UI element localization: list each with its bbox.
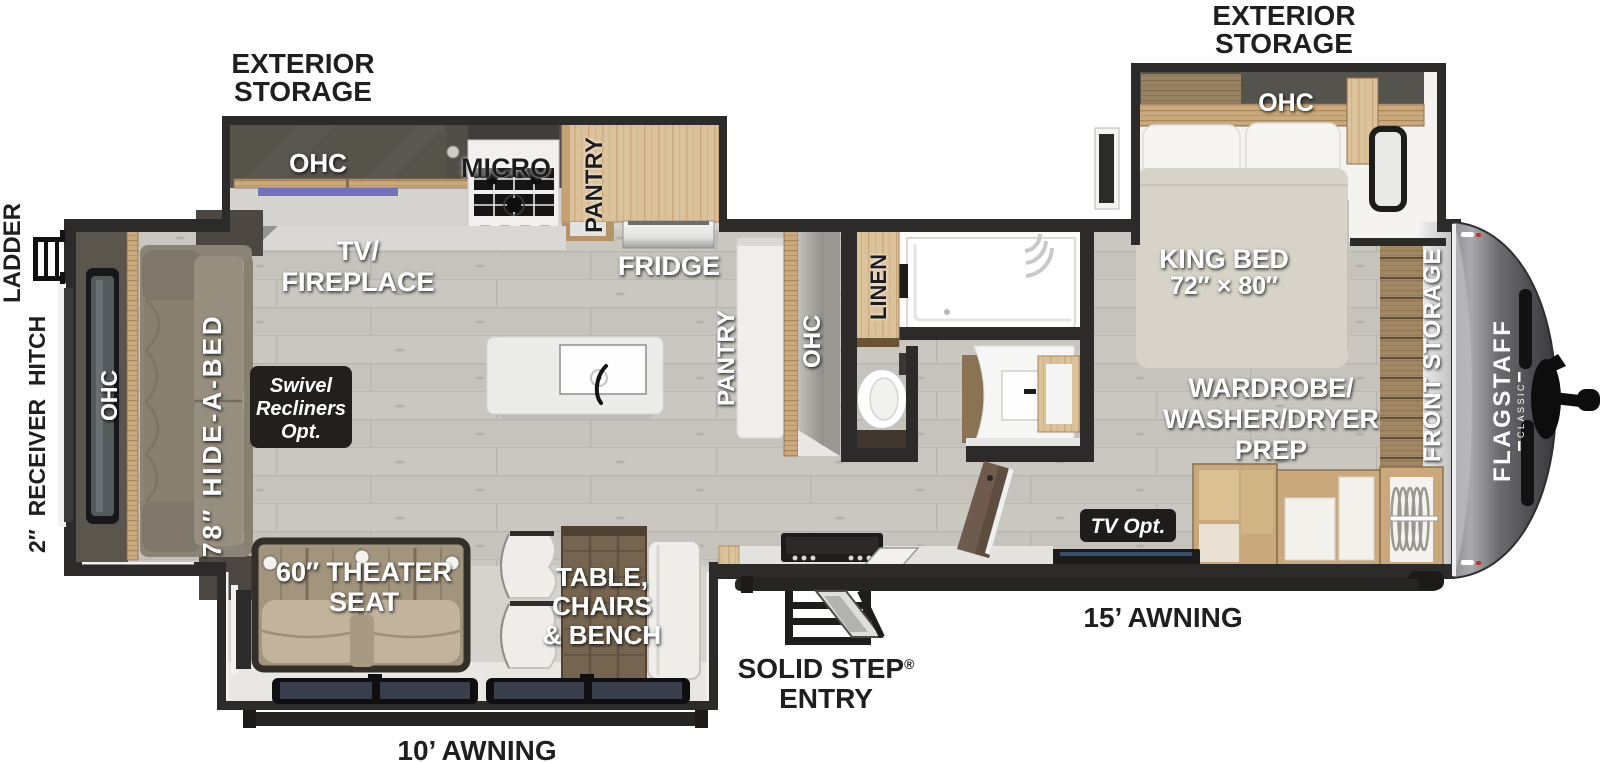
svg-text:FRIDGE: FRIDGE	[618, 251, 720, 281]
svg-text:Swivel: Swivel	[270, 375, 333, 397]
svg-text:PANTRY: PANTRY	[713, 310, 740, 406]
svg-text:EXTERIOR: EXTERIOR	[231, 48, 374, 79]
svg-text:Recliners: Recliners	[256, 398, 346, 420]
svg-text:2″ RECEIVER HITCH: 2″ RECEIVER HITCH	[24, 316, 50, 553]
svg-text:PANTRY: PANTRY	[581, 137, 608, 233]
svg-text:WASHER/DRYER: WASHER/DRYER	[1163, 404, 1378, 434]
svg-text:& BENCH: & BENCH	[543, 620, 661, 650]
svg-text:LINEN: LINEN	[866, 254, 891, 320]
svg-text:Opt.: Opt.	[281, 421, 321, 443]
svg-text:CLASSIC: CLASSIC	[1516, 382, 1526, 438]
svg-text:60″ THEATER: 60″ THEATER	[276, 557, 452, 587]
svg-text:78″ HIDE-A-BED: 78″ HIDE-A-BED	[197, 313, 227, 557]
svg-text:OHC: OHC	[799, 315, 826, 368]
svg-text:FLAGSTAFF: FLAGSTAFF	[1489, 319, 1516, 482]
svg-text:STORAGE: STORAGE	[1215, 28, 1353, 59]
svg-text:OHC: OHC	[1258, 89, 1314, 117]
svg-text:TV/: TV/	[337, 236, 380, 266]
svg-text:SOLID STEP®: SOLID STEP®	[738, 653, 915, 684]
svg-text:WARDROBE/: WARDROBE/	[1189, 373, 1355, 403]
svg-text:10’ AWNING: 10’ AWNING	[397, 735, 556, 763]
svg-text:OHC: OHC	[96, 370, 122, 421]
svg-text:LADDER: LADDER	[0, 203, 26, 303]
svg-text:TV Opt.: TV Opt.	[1091, 515, 1166, 538]
svg-text:OHC: OHC	[289, 148, 347, 178]
svg-text:PREP: PREP	[1235, 435, 1307, 465]
svg-text:TABLE,: TABLE,	[556, 562, 648, 592]
svg-text:FRONT STORAGE: FRONT STORAGE	[1419, 248, 1446, 462]
svg-text:MICRO: MICRO	[461, 153, 551, 183]
svg-text:CHAIRS: CHAIRS	[552, 591, 652, 621]
svg-text:72″ × 80″: 72″ × 80″	[1170, 272, 1278, 300]
svg-text:15’ AWNING: 15’ AWNING	[1083, 602, 1242, 633]
svg-text:EXTERIOR: EXTERIOR	[1212, 0, 1355, 31]
svg-text:STORAGE: STORAGE	[234, 76, 372, 107]
svg-text:ENTRY: ENTRY	[779, 683, 873, 714]
svg-text:SEAT: SEAT	[329, 587, 400, 617]
svg-text:FIREPLACE: FIREPLACE	[281, 267, 434, 297]
svg-text:KING BED: KING BED	[1159, 244, 1289, 274]
